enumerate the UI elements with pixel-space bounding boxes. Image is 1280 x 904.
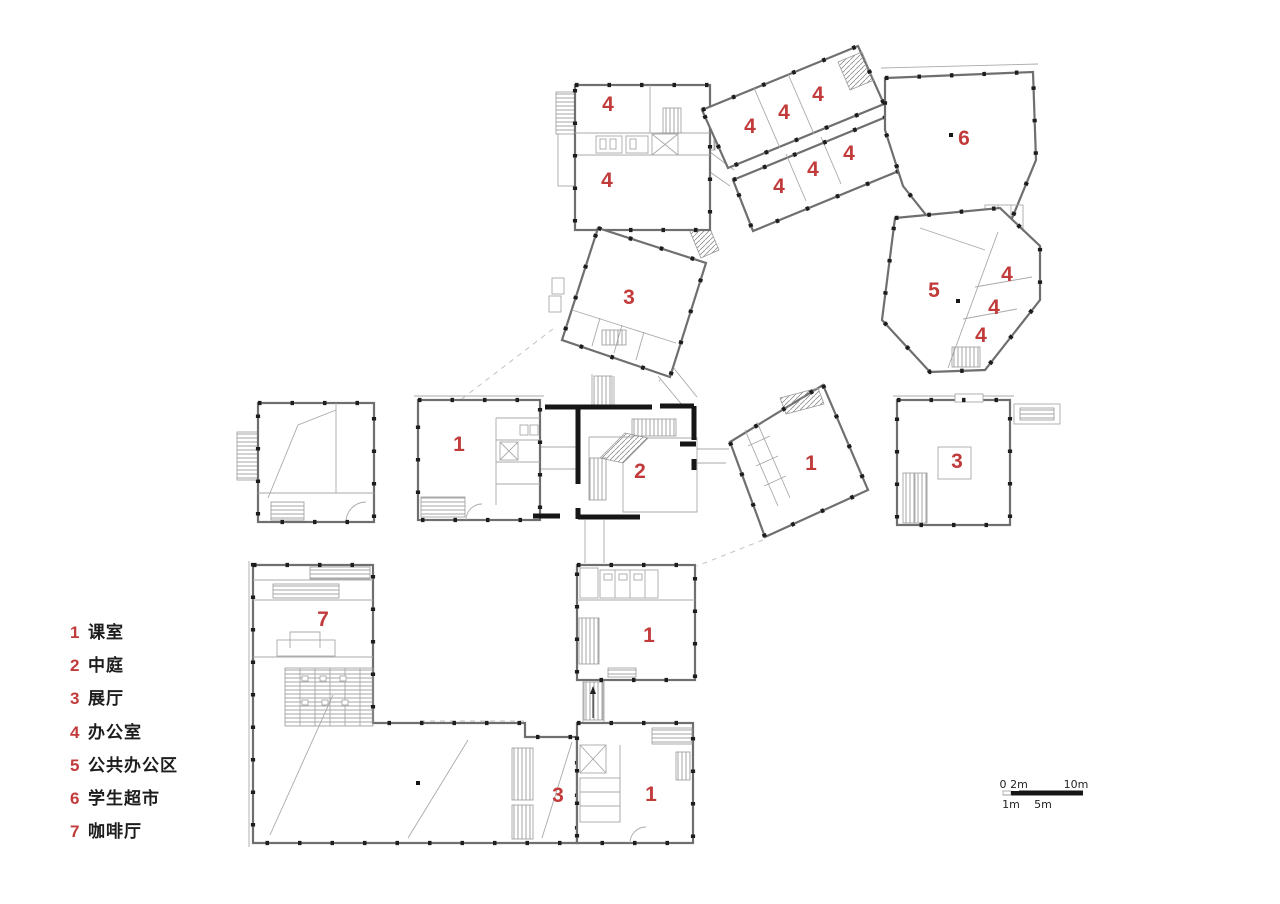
scale-label-10m: 10m [1064, 778, 1089, 791]
grand-stair [632, 419, 676, 436]
column-dot [416, 781, 420, 785]
room-label: 3 [552, 784, 564, 807]
legend-item-label: 展厅 [88, 684, 124, 709]
building-exhibition-right [893, 394, 1060, 525]
column-dot [949, 133, 953, 137]
scale-bar: 0 2m 10m 1m 5m [1000, 778, 1089, 811]
legend-item: 7咖啡厅 [70, 817, 178, 850]
legend-item-label: 公共办公区 [88, 751, 178, 776]
building-classroom-rotated [730, 385, 868, 537]
stair [589, 458, 606, 500]
room-label: 4 [773, 175, 785, 198]
scale-label-2m: 2m [1010, 778, 1028, 791]
stair [273, 584, 339, 598]
legend-item-number: 1 [70, 623, 88, 643]
stair [512, 748, 533, 800]
building-public-office [882, 208, 1040, 372]
building-cafe-L [249, 561, 577, 847]
grand-stair-diagonal [600, 433, 648, 463]
legend-item: 1课室 [70, 618, 178, 651]
stair [652, 728, 692, 744]
stair-annex [237, 432, 258, 480]
room-label: 1 [805, 452, 817, 475]
legend-item-number: 5 [70, 756, 88, 776]
room-label: 1 [645, 783, 657, 806]
building-classroom-bottom [577, 723, 693, 843]
legend-item-label: 办公室 [88, 718, 142, 743]
room-label: 1 [453, 433, 465, 456]
room-label: 4 [812, 83, 824, 106]
room-label: 6 [958, 127, 970, 150]
column-dot [956, 299, 960, 303]
room-label: 5 [928, 279, 940, 302]
floor-plan-drawing: 4444444465444312137131 0 2m 10m 1m 5m [0, 0, 1280, 904]
legend-item-number: 6 [70, 789, 88, 809]
room-label: 4 [744, 115, 756, 138]
stair [310, 567, 370, 579]
legend-item-label: 课室 [88, 618, 124, 643]
room-label: 4 [988, 296, 1000, 319]
room-label: 4 [975, 324, 987, 347]
legend-item: 4办公室 [70, 718, 178, 751]
legend-item: 3展厅 [70, 684, 178, 717]
legend-item: 6学生超市 [70, 784, 178, 817]
building-classroom-bottom-center [577, 565, 695, 680]
room-label: 3 [623, 286, 635, 309]
stair [676, 752, 690, 780]
scale-label-1m: 1m [1002, 798, 1020, 811]
building-left-unlabeled [237, 403, 374, 522]
legend-item-label: 学生超市 [88, 784, 160, 809]
stair [421, 497, 465, 517]
scale-label-0: 0 [1000, 778, 1007, 791]
room-label: 4 [602, 93, 614, 116]
room-label: 4 [601, 169, 613, 192]
legend-item: 2中庭 [70, 651, 178, 684]
legend-item-label: 咖啡厅 [88, 817, 142, 842]
building-classroom-mid-left [414, 396, 544, 520]
scale-label-5m: 5m [1034, 798, 1052, 811]
room-label: 4 [843, 142, 855, 165]
legend-item: 5公共办公区 [70, 751, 178, 784]
legend-item-number: 4 [70, 723, 88, 743]
room-label: 1 [643, 624, 655, 647]
stair [952, 347, 980, 367]
legend-item-label: 中庭 [88, 651, 124, 676]
stair [608, 668, 636, 677]
room-label: 4 [807, 158, 819, 181]
stair [271, 502, 304, 520]
stair [663, 108, 681, 133]
legend-item-number: 7 [70, 822, 88, 842]
stair [602, 330, 626, 345]
room-label: 2 [634, 460, 646, 483]
room-label: 7 [317, 608, 329, 631]
room-label: 4 [1001, 263, 1013, 286]
floor-plan-page: 4444444465444312137131 0 2m 10m 1m 5m 1课… [0, 0, 1280, 904]
stair [512, 805, 533, 839]
legend-item-number: 2 [70, 656, 88, 676]
legend-item-number: 3 [70, 689, 88, 709]
atrium [533, 406, 697, 519]
room-legend: 1课室2中庭3展厅4办公室5公共办公区6学生超市7咖啡厅 [70, 618, 178, 850]
building-office-top-left [556, 85, 710, 230]
room-label: 3 [951, 450, 963, 473]
stair [579, 618, 599, 664]
room-label: 4 [778, 101, 790, 124]
